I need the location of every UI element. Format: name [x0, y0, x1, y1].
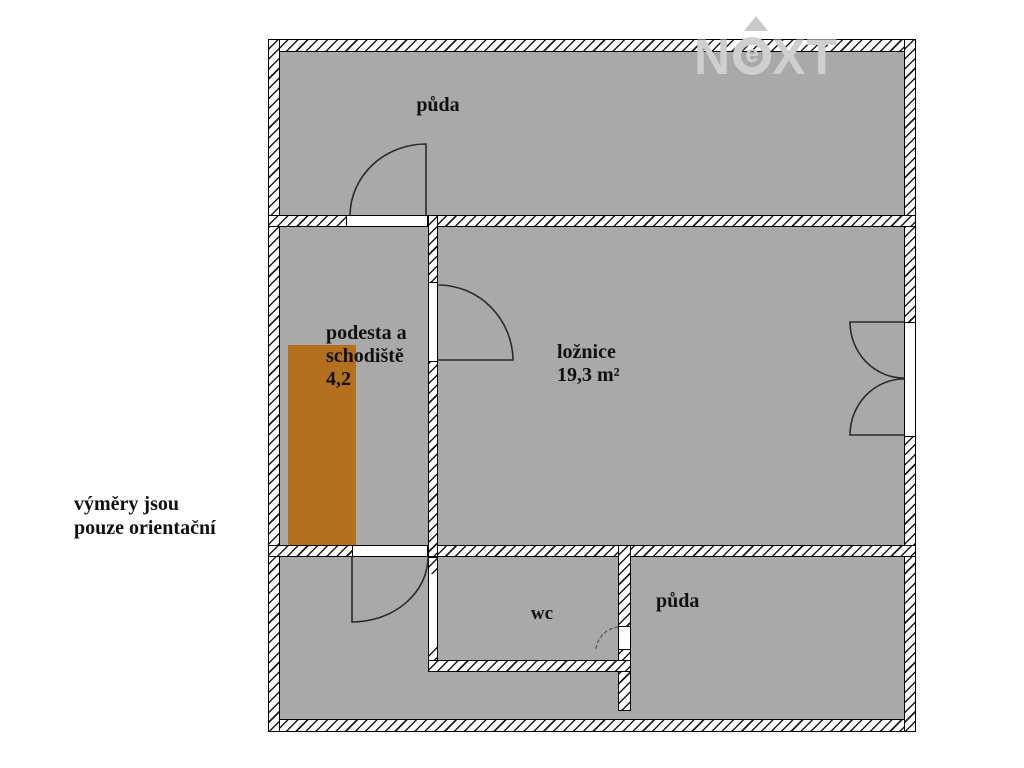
disclaimer-line2: pouze orientační — [74, 516, 216, 540]
door-opening-bedroom — [428, 282, 438, 362]
next-logo-arrow-icon — [744, 16, 768, 31]
wall-wc-left — [428, 557, 438, 672]
door-opening-wc — [618, 626, 631, 650]
wall-outer-bottom — [268, 719, 916, 732]
next-logo-letter-n: N — [694, 34, 731, 80]
room-label-landing: podesta a schodiště 4,2 — [326, 322, 407, 391]
next-logo-letter-x: X — [772, 34, 806, 80]
disclaimer-note: výměry jsou pouze orientační — [74, 492, 216, 540]
bedroom-area: 19,3 m² — [557, 364, 620, 387]
wall-outer-left — [268, 39, 280, 732]
landing-area: 4,2 — [326, 368, 407, 391]
landing-line2: schodiště — [326, 345, 407, 368]
wc-text: wc — [531, 603, 553, 624]
door-opening-attic-top — [346, 215, 428, 227]
bedroom-name: ložnice — [557, 341, 620, 364]
room-label-attic-top: půda — [407, 94, 469, 117]
next-logo-letters: N e X T — [694, 34, 838, 80]
door-opening-balcony-double — [904, 322, 916, 437]
door-opening-attic-bottom — [352, 545, 428, 557]
room-bedroom — [428, 215, 904, 545]
floorplan-page: půda podesta a schodiště 4,2 ložnice 19,… — [0, 0, 1024, 768]
attic-top-text: půda — [416, 94, 459, 116]
wall-wc-bottom — [428, 660, 631, 672]
room-label-attic-bottom: půda — [656, 590, 699, 613]
next-logo-letter-t: T — [806, 34, 838, 80]
attic-bottom-text: půda — [656, 590, 699, 612]
wall-wc-left-hatch-top — [429, 558, 437, 574]
disclaimer-line1: výměry jsou — [74, 492, 216, 516]
next-logo-watermark: N e X T — [694, 10, 874, 90]
room-label-bedroom: ložnice 19,3 m² — [557, 341, 620, 387]
wall-vertical-middle — [428, 215, 438, 557]
landing-line1: podesta a — [326, 322, 407, 345]
next-logo-letter-e: e — [745, 43, 758, 67]
room-label-wc: wc — [522, 602, 562, 625]
next-logo-ring-icon: e — [733, 37, 771, 75]
